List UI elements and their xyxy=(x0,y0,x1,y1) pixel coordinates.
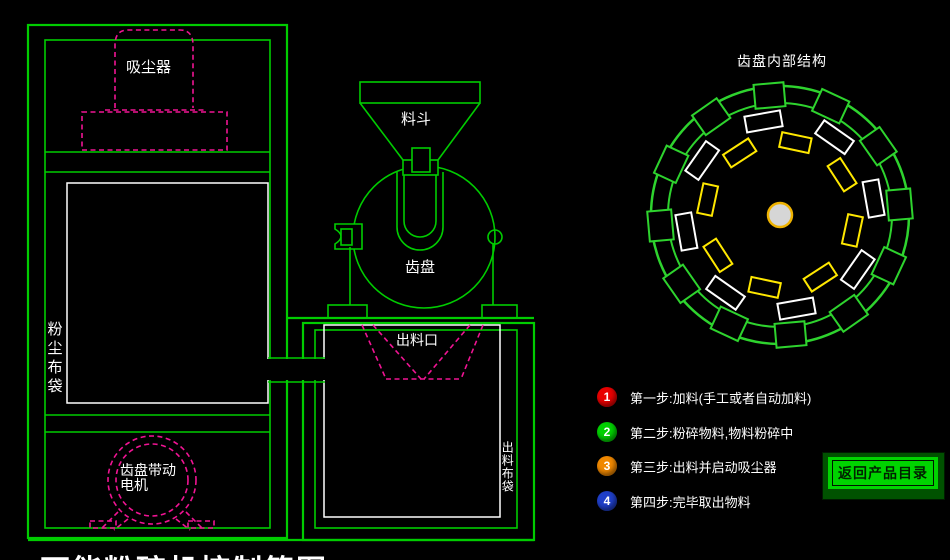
gear-tooth xyxy=(775,321,807,348)
hopper-top xyxy=(360,82,480,103)
gear-tooth xyxy=(830,295,868,332)
hopper-throat xyxy=(412,148,430,172)
gear-disc-diagram xyxy=(647,82,913,348)
step-1-number: 1 xyxy=(604,390,611,404)
step-1-text: 第一步:加料(手工或者自动加料) xyxy=(630,388,811,407)
step-3-number: 3 xyxy=(604,459,611,473)
step-4-number: 4 xyxy=(604,494,611,508)
foot-right xyxy=(482,305,517,318)
gear-tooth xyxy=(647,210,674,242)
gear-tooth xyxy=(777,298,815,320)
hopper-slope-left xyxy=(360,103,403,160)
step-4-badge: 4 xyxy=(597,491,617,511)
step-1-badge: 1 xyxy=(597,387,617,407)
vacuum-base xyxy=(82,112,227,150)
gear-tooth xyxy=(748,277,780,298)
gear-tooth xyxy=(703,239,732,272)
outlet-bag-label: 出料布袋 xyxy=(500,441,513,493)
gear-diagram-title: 齿盘内部结构 xyxy=(737,54,827,69)
gear-tooth xyxy=(779,132,811,153)
gear-tooth xyxy=(711,307,748,341)
step-4-text: 第四步:完毕取出物料 xyxy=(630,492,751,511)
gear-tooth xyxy=(697,183,718,215)
dust-bag-label: 粉尘布袋 xyxy=(45,321,62,397)
gear-tooth xyxy=(663,265,700,303)
gear-tooth xyxy=(828,158,857,191)
hopper-label: 料斗 xyxy=(401,112,431,129)
gear-tooth xyxy=(723,138,756,167)
gear-hub xyxy=(768,203,792,227)
foot-left xyxy=(328,305,367,318)
gear-tooth xyxy=(754,82,786,109)
step-row-1: 1 第一步:加料(手工或者自动加料) xyxy=(597,387,811,407)
motor-label-line2: 电机 xyxy=(120,478,148,493)
gear-tooth xyxy=(842,214,863,246)
gear-tooth xyxy=(675,212,697,250)
diagram-page: 吸尘器 料斗 齿盘 出料口 粉尘布袋 出料布袋 齿盘带动 电机 齿盘内部结构 1… xyxy=(0,0,950,560)
step-row-4: 4 第四步:完毕取出物料 xyxy=(597,491,751,511)
motor-leg xyxy=(102,512,118,528)
gear-plate-label: 齿盘 xyxy=(405,260,435,277)
gear-tooth xyxy=(872,247,906,284)
gear-tooth xyxy=(886,189,913,221)
dust-bag-chamber xyxy=(67,183,268,403)
back-button-label: 返回产品目录 xyxy=(832,460,934,486)
step-2-text: 第二步:粉碎物料,物料粉碎中 xyxy=(630,423,793,442)
vacuum-label: 吸尘器 xyxy=(126,60,171,77)
gear-tooth xyxy=(860,127,897,165)
step-row-3: 3 第三步:出料并启动吸尘器 xyxy=(597,456,777,476)
back-to-catalog-button[interactable]: 返回产品目录 xyxy=(822,452,945,500)
gear-tooth xyxy=(744,110,782,132)
page-title: 万能粉碎机控制简图 xyxy=(40,546,328,560)
hopper-slope-right xyxy=(438,103,480,160)
inlet-bracket-core xyxy=(341,229,352,245)
step-3-badge: 3 xyxy=(597,456,617,476)
step-2-badge: 2 xyxy=(597,422,617,442)
gear-tooth xyxy=(863,179,885,217)
outlet-funnel-line xyxy=(362,325,386,379)
back-button-face: 返回产品目录 xyxy=(828,457,938,489)
gear-tooth xyxy=(692,98,730,135)
outlet-bag-chamber xyxy=(324,325,500,517)
outlet-box xyxy=(303,323,534,540)
cabinet-inner-frame xyxy=(45,40,270,528)
gear-tooth xyxy=(654,146,688,183)
step-row-2: 2 第二步:粉碎物料,物料粉碎中 xyxy=(597,422,793,442)
outlet-inner-frame xyxy=(315,330,517,528)
gear-tooth xyxy=(812,89,849,123)
step-2-number: 2 xyxy=(604,425,611,439)
outlet-funnel-line xyxy=(461,325,483,379)
outlet-label: 出料口 xyxy=(396,333,438,348)
step-3-text: 第三步:出料并启动吸尘器 xyxy=(630,457,777,476)
duct-gap xyxy=(266,359,328,380)
gear-tooth xyxy=(804,263,837,292)
